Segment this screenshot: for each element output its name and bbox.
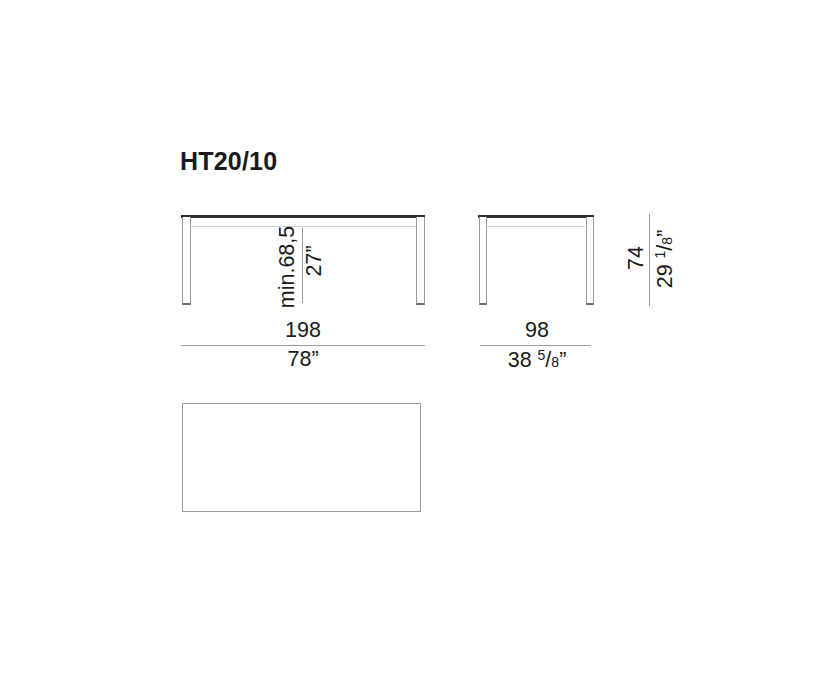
front-table-leg-right xyxy=(416,217,425,305)
front-tabletop-edge xyxy=(181,215,425,218)
side-width-imperial-numerator: 5 xyxy=(538,347,546,363)
side-table-leg-left xyxy=(479,217,488,305)
side-width-imperial-inch-mark: ” xyxy=(559,348,566,372)
technical-drawing-page: HT20/10 min.68,5 27” 198 78” 98 38 5/8” … xyxy=(0,0,840,679)
product-code-title: HT20/10 xyxy=(180,147,277,176)
side-width-imperial-whole: 38 xyxy=(508,348,538,372)
side-tabletop-underside-line xyxy=(487,226,585,227)
side-tabletop-edge xyxy=(478,215,594,218)
height-imperial-numerator: 1 xyxy=(652,251,668,259)
top-view-outline xyxy=(182,403,421,512)
clearance-metric-label: min.68,5 xyxy=(277,226,299,308)
height-imperial-inch-mark: ” xyxy=(653,230,677,237)
side-table-leg-right xyxy=(586,217,595,305)
side-width-dimension-line xyxy=(480,345,591,346)
front-width-imperial-label: 78” xyxy=(287,349,318,371)
height-metric-label: 74 xyxy=(626,246,648,270)
side-width-metric-label: 98 xyxy=(525,320,549,342)
height-imperial-fraction-slash: / xyxy=(653,245,677,251)
side-width-imperial-label: 38 5/8” xyxy=(508,348,567,372)
front-table-leg-left xyxy=(182,217,191,305)
front-width-metric-label: 198 xyxy=(285,320,321,342)
height-imperial-whole: 29 xyxy=(653,258,677,288)
height-imperial-label: 29 1/8” xyxy=(653,230,677,289)
clearance-imperial-label: 27” xyxy=(304,245,326,276)
front-tabletop-underside-line xyxy=(190,226,416,227)
height-imperial-denominator: 8 xyxy=(659,237,675,245)
front-width-dimension-line xyxy=(181,345,425,346)
height-dimension-line xyxy=(649,214,650,306)
